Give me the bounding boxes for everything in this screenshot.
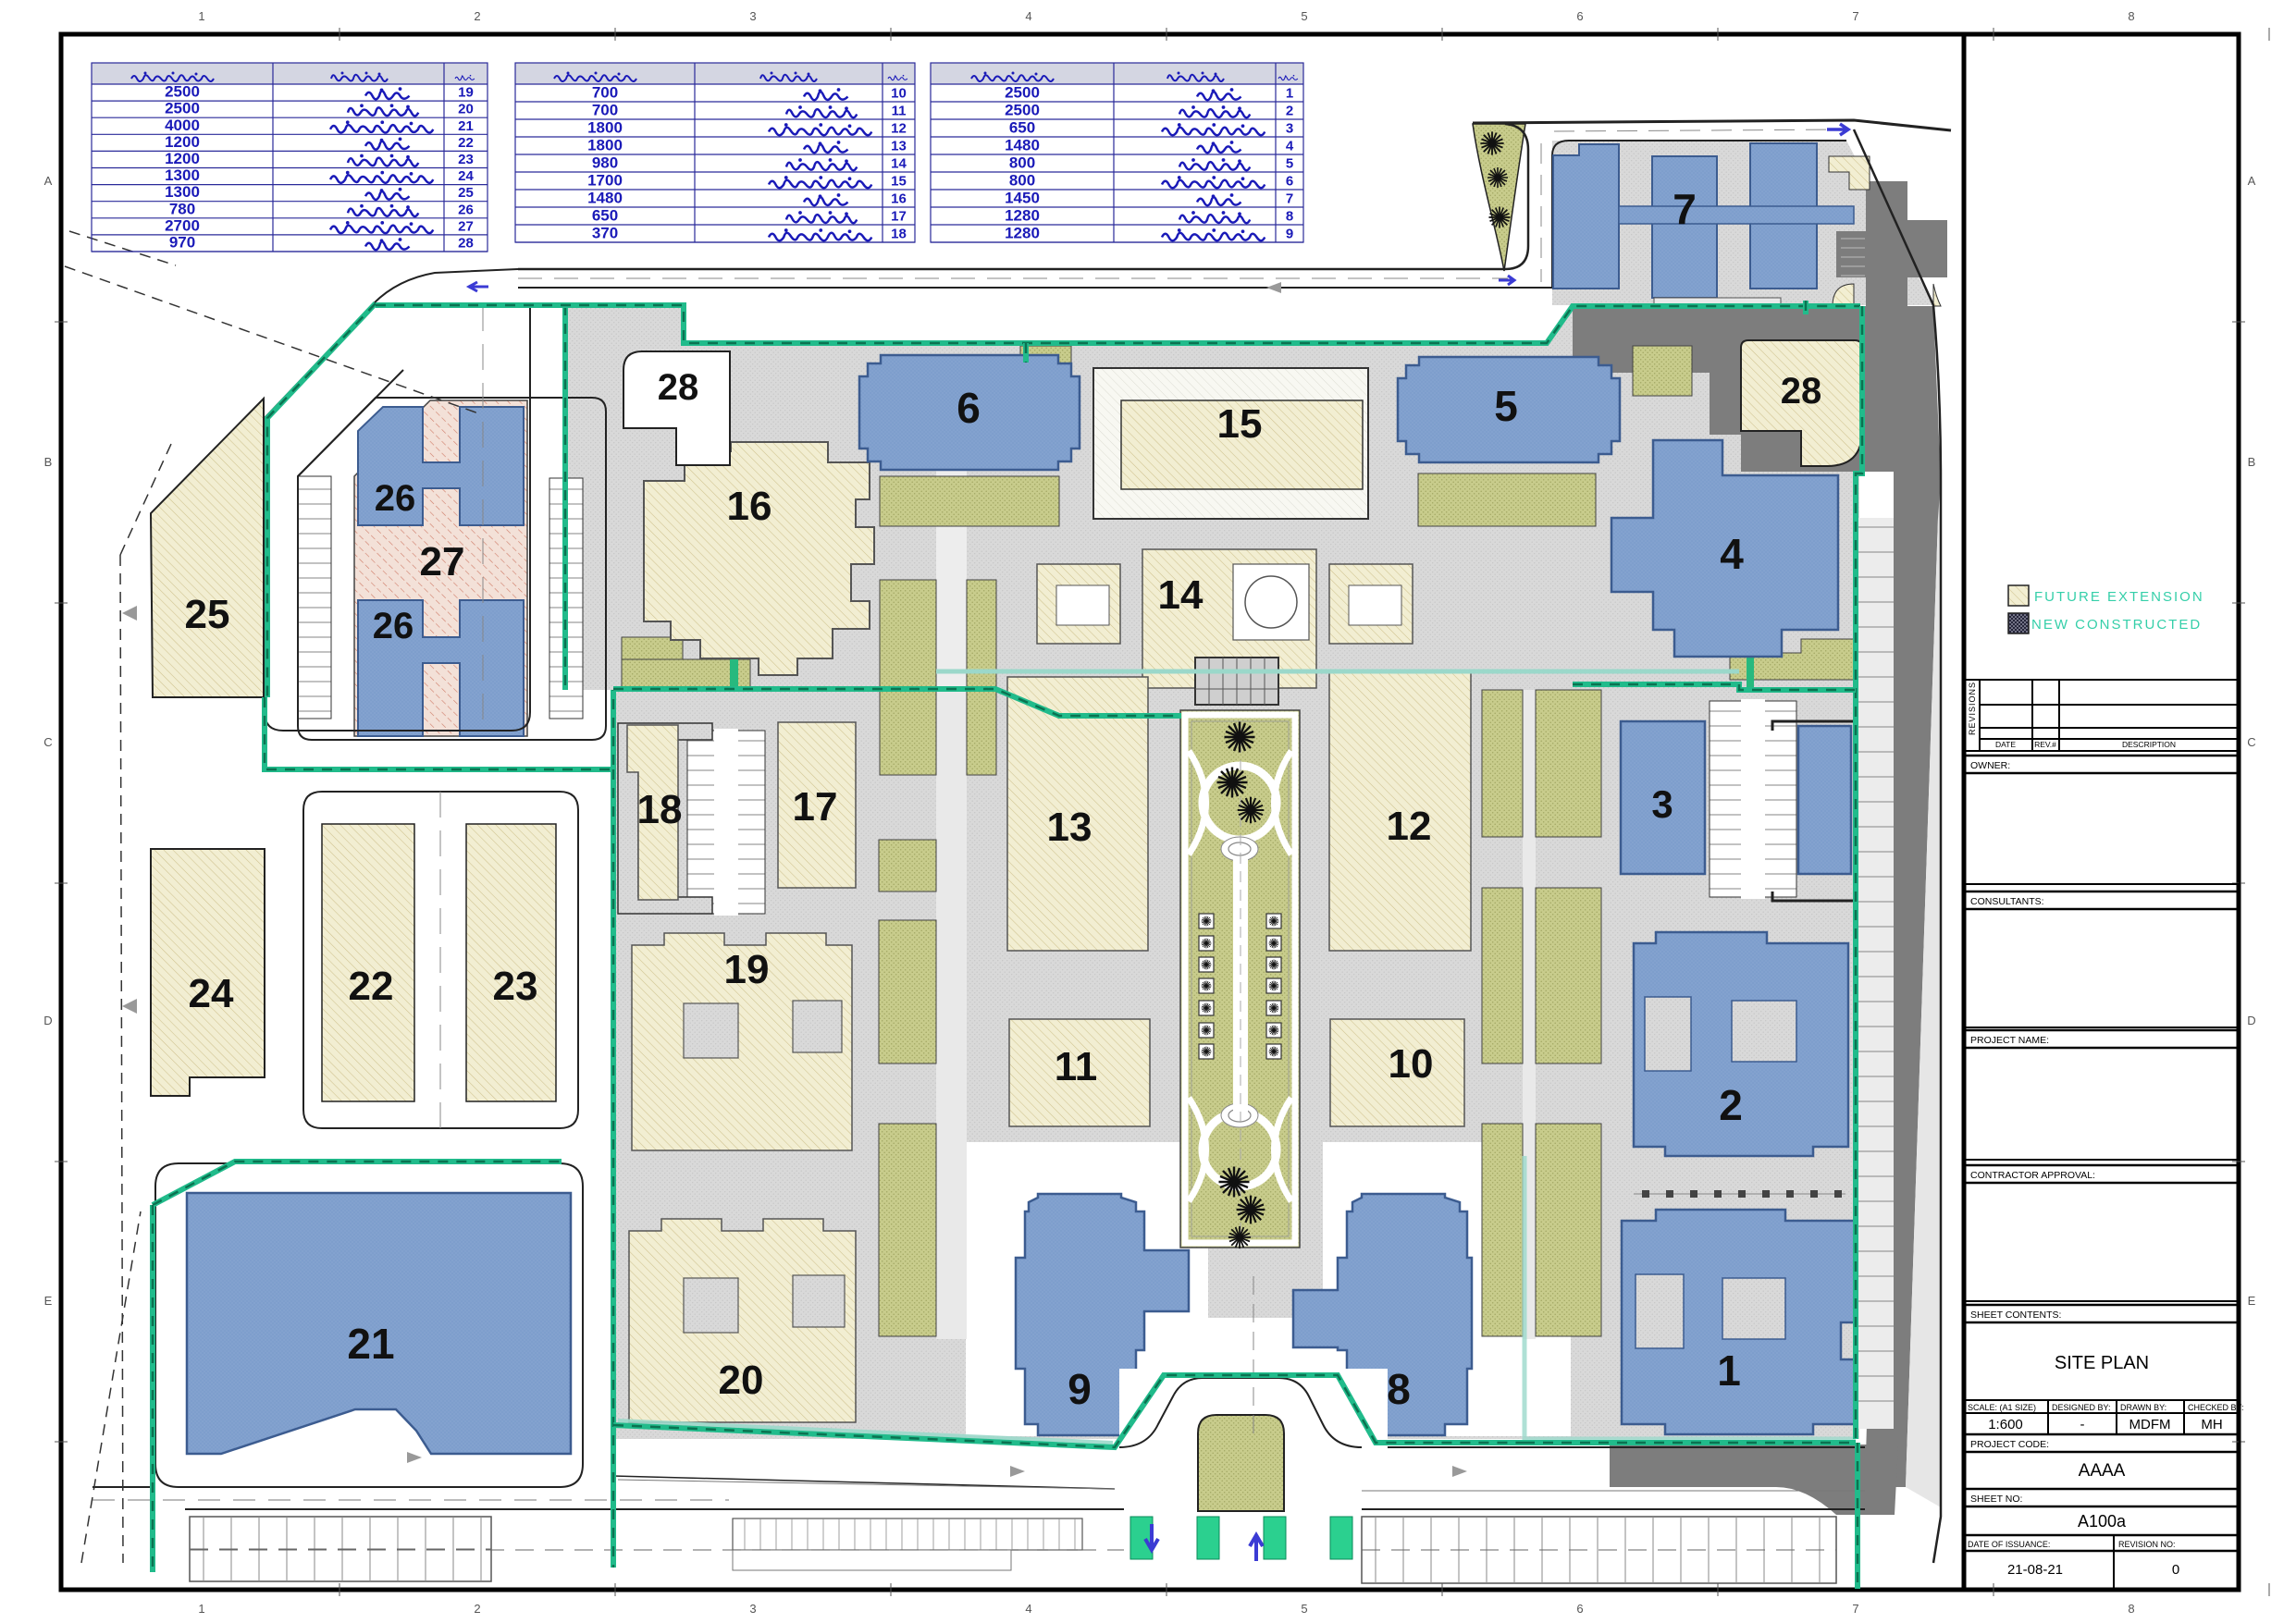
svg-text:1: 1 [1286,86,1293,102]
svg-text:B: B [44,455,53,469]
svg-text:1300: 1300 [165,166,200,184]
svg-text:28: 28 [458,236,474,252]
svg-text:-: - [2080,1417,2085,1432]
svg-text:1200: 1200 [165,150,200,167]
svg-text:1450: 1450 [1005,190,1040,207]
svg-text:NEW CONSTRUCTED: NEW CONSTRUCTED [2031,617,2202,633]
svg-text:800: 800 [1009,172,1035,190]
svg-text:MH: MH [2201,1417,2222,1432]
svg-text:D: D [2247,1014,2255,1027]
svg-text:B: B [2248,455,2256,469]
svg-text:DATE OF ISSUANCE:: DATE OF ISSUANCE: [1968,1540,2050,1549]
svg-text:REVISIONS: REVISIONS [1968,682,1977,735]
svg-text:4: 4 [1286,139,1294,154]
svg-text:26: 26 [458,202,474,217]
svg-text:CONSULTANTS:: CONSULTANTS: [1970,896,2044,907]
svg-text:28: 28 [1781,371,1822,412]
svg-text:3: 3 [749,9,756,23]
svg-text:0: 0 [2172,1562,2179,1578]
svg-text:5: 5 [1301,9,1307,23]
svg-text:7: 7 [1286,191,1293,207]
svg-text:4: 4 [1025,9,1031,23]
svg-text:E: E [2248,1294,2256,1308]
svg-text:1:600: 1:600 [1988,1417,2023,1432]
svg-text:DESCRIPTION: DESCRIPTION [2122,740,2176,749]
svg-text:27: 27 [458,218,474,234]
svg-text:20: 20 [458,102,474,117]
svg-text:18: 18 [891,227,907,242]
svg-text:8: 8 [2128,9,2134,23]
svg-text:DRAWN BY:: DRAWN BY: [2120,1403,2166,1412]
svg-text:2: 2 [474,9,480,23]
svg-text:16: 16 [891,191,907,207]
svg-text:11: 11 [892,104,907,119]
svg-text:1280: 1280 [1005,225,1040,242]
svg-text:1200: 1200 [165,133,200,151]
svg-text:2500: 2500 [1005,102,1040,119]
svg-text:9: 9 [1068,1365,1092,1413]
svg-text:700: 700 [592,84,618,102]
svg-text:3: 3 [749,1602,756,1616]
svg-text:1300: 1300 [165,183,200,201]
svg-text:10: 10 [891,86,907,102]
svg-text:700: 700 [592,102,618,119]
svg-text:5: 5 [1301,1602,1307,1616]
svg-text:A100a: A100a [2078,1512,2127,1531]
svg-text:21: 21 [347,1320,394,1368]
svg-text:19: 19 [724,947,770,992]
svg-text:MDFM: MDFM [2129,1417,2171,1432]
svg-text:12: 12 [1387,804,1432,849]
svg-text:SITE PLAN: SITE PLAN [2055,1353,2149,1373]
svg-text:1: 1 [198,1602,204,1616]
svg-text:4: 4 [1720,530,1744,578]
svg-text:1800: 1800 [587,119,623,137]
svg-text:23: 23 [493,964,538,1009]
svg-text:8: 8 [1286,209,1293,225]
svg-text:1: 1 [198,9,204,23]
svg-text:28: 28 [658,367,699,408]
svg-text:2: 2 [1286,104,1293,119]
svg-text:6: 6 [1576,9,1583,23]
svg-text:2500: 2500 [165,100,200,117]
svg-text:7: 7 [1852,9,1858,23]
svg-text:4000: 4000 [165,117,200,134]
svg-text:24: 24 [458,168,474,184]
svg-text:650: 650 [592,207,618,225]
svg-text:SHEET CONTENTS:: SHEET CONTENTS: [1970,1309,2061,1321]
svg-text:C: C [2247,735,2255,749]
svg-text:23: 23 [458,152,474,167]
svg-text:780: 780 [169,200,195,217]
svg-text:25: 25 [185,592,230,637]
svg-text:A: A [2248,174,2256,188]
svg-text:27: 27 [420,539,465,584]
svg-text:22: 22 [458,135,474,151]
svg-text:6: 6 [957,384,981,432]
svg-text:6: 6 [1286,174,1293,190]
svg-text:AAAA: AAAA [2079,1461,2126,1481]
svg-text:20: 20 [719,1358,764,1403]
svg-text:1280: 1280 [1005,207,1040,225]
svg-text:370: 370 [592,225,618,242]
svg-text:SHEET NO:: SHEET NO: [1970,1494,2022,1505]
svg-text:13: 13 [1047,805,1092,850]
svg-text:D: D [43,1014,52,1027]
svg-text:21: 21 [458,118,474,134]
svg-text:8: 8 [1387,1365,1411,1413]
svg-text:24: 24 [189,971,234,1016]
svg-text:18: 18 [637,787,683,832]
svg-text:2700: 2700 [165,216,200,234]
svg-text:11: 11 [1055,1044,1098,1089]
svg-text:15: 15 [891,174,907,190]
svg-text:8: 8 [2128,1602,2134,1616]
svg-text:E: E [44,1294,53,1308]
svg-text:1700: 1700 [587,172,623,190]
svg-text:3: 3 [1286,121,1293,137]
svg-text:800: 800 [1009,154,1035,172]
svg-text:C: C [43,735,52,749]
svg-text:6: 6 [1576,1602,1583,1616]
svg-text:REV.#: REV.# [2034,740,2056,749]
svg-text:19: 19 [458,85,474,101]
svg-text:14: 14 [1158,572,1204,618]
svg-text:17: 17 [891,209,907,225]
svg-text:DATE: DATE [1995,740,2016,749]
svg-text:15: 15 [1217,401,1263,447]
svg-text:12: 12 [891,121,907,137]
svg-text:4: 4 [1025,1602,1031,1616]
svg-text:5: 5 [1286,156,1293,172]
svg-text:2500: 2500 [165,83,200,101]
svg-text:REVISION NO:: REVISION NO: [2118,1540,2176,1549]
svg-text:13: 13 [891,139,907,154]
svg-text:A: A [44,174,53,188]
svg-text:2: 2 [474,1602,480,1616]
svg-text:FUTURE EXTENSION: FUTURE EXTENSION [2034,589,2204,605]
svg-text:7: 7 [1852,1602,1858,1616]
svg-text:1480: 1480 [587,190,623,207]
svg-text:2500: 2500 [1005,84,1040,102]
svg-text:2: 2 [1719,1081,1743,1129]
svg-text:1480: 1480 [1005,137,1040,154]
svg-text:OWNER:: OWNER: [1970,760,2010,771]
svg-text:CHECKED BY:: CHECKED BY: [2188,1403,2244,1412]
svg-text:7: 7 [1673,185,1697,233]
svg-text:970: 970 [169,234,195,252]
svg-text:PROJECT NAME:: PROJECT NAME: [1970,1035,2049,1046]
svg-text:SCALE: (A1 SIZE): SCALE: (A1 SIZE) [1968,1403,2036,1412]
svg-text:650: 650 [1009,119,1035,137]
svg-text:5: 5 [1494,382,1518,430]
svg-text:1800: 1800 [587,137,623,154]
svg-text:22: 22 [349,964,394,1009]
svg-text:CONTRACTOR APPROVAL:: CONTRACTOR APPROVAL: [1970,1170,2095,1181]
svg-text:25: 25 [458,185,474,201]
svg-text:3: 3 [1651,782,1673,826]
svg-text:16: 16 [727,484,772,529]
svg-text:9: 9 [1286,227,1293,242]
svg-text:10: 10 [1389,1041,1434,1087]
svg-text:26: 26 [375,478,416,519]
svg-text:17: 17 [793,784,838,830]
svg-text:1: 1 [1717,1346,1741,1395]
svg-text:DESIGNED BY:: DESIGNED BY: [2052,1403,2111,1412]
svg-text:980: 980 [592,154,618,172]
svg-text:PROJECT CODE:: PROJECT CODE: [1970,1439,2049,1450]
svg-text:21-08-21: 21-08-21 [2007,1562,2063,1578]
svg-text:26: 26 [373,606,414,646]
svg-text:14: 14 [891,156,907,172]
